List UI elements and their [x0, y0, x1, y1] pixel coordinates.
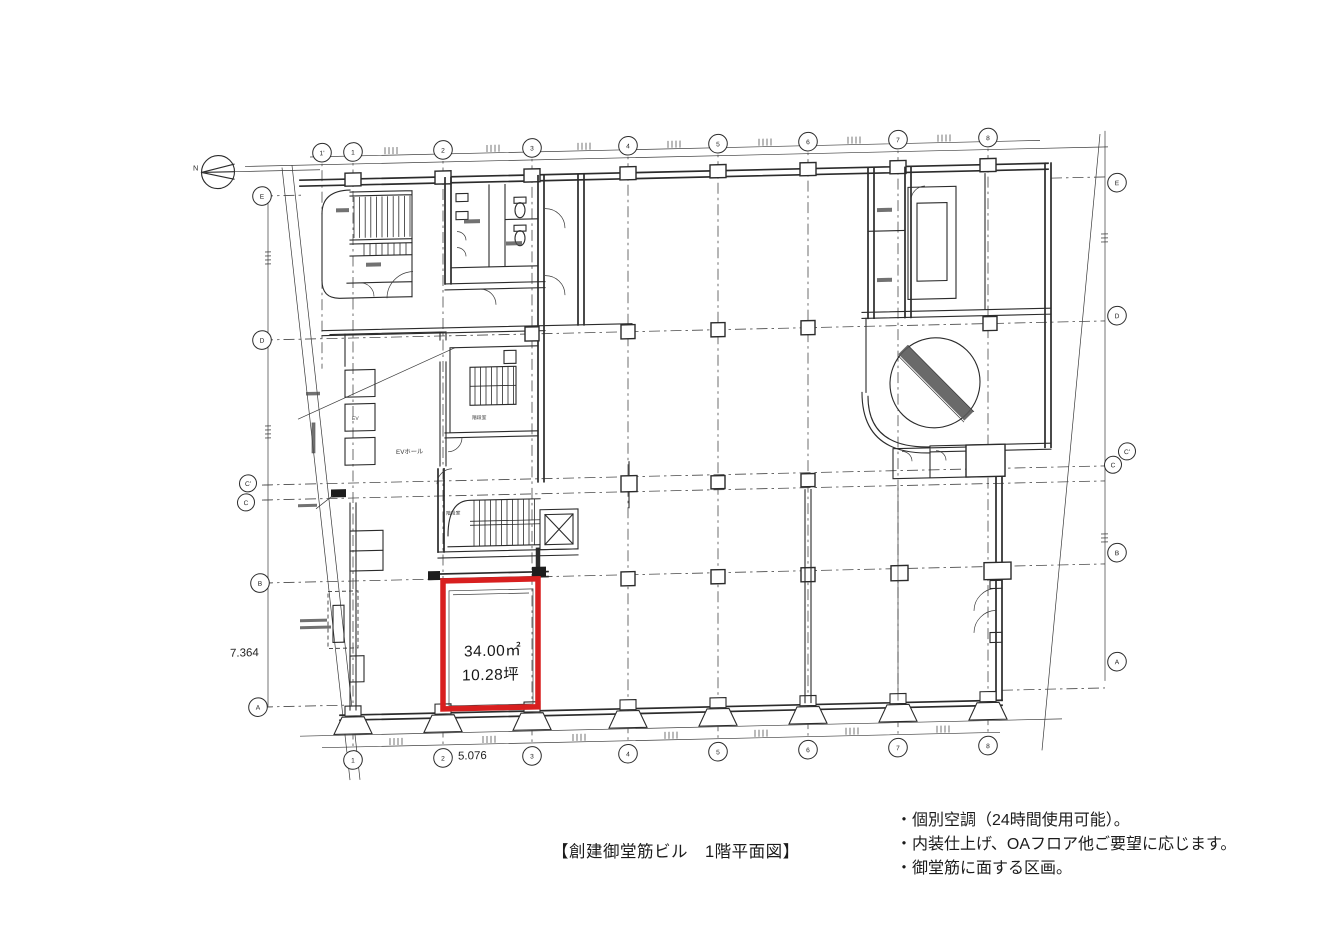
svg-text:A: A — [256, 705, 261, 712]
svg-text:7: 7 — [896, 745, 900, 752]
grid-bubble-bottom-1: 2 — [434, 748, 453, 767]
svg-text:6: 6 — [806, 747, 810, 754]
grid-bubble-left-2: C' — [240, 475, 257, 492]
svg-text:C': C' — [1124, 449, 1130, 456]
svg-text:2: 2 — [441, 755, 445, 762]
svg-text:1': 1' — [320, 150, 325, 157]
svg-text:B: B — [1115, 550, 1120, 557]
svg-text:E: E — [1115, 180, 1120, 187]
svg-text:3: 3 — [530, 753, 534, 760]
grid-bubble-bottom-5: 6 — [799, 740, 818, 759]
grid-bubble-left-1: D — [253, 331, 272, 350]
dimension-ticks — [264, 131, 1108, 748]
grid-lines — [262, 131, 1105, 752]
floor-plan-drawing: N — [0, 0, 1340, 947]
grid-bubble-bottom-2: 3 — [523, 746, 542, 765]
dimension-left: 7.364 — [230, 647, 259, 660]
machine-rooms-northeast — [862, 164, 1051, 318]
svg-text:5: 5 — [716, 141, 720, 148]
west-strip — [298, 488, 383, 711]
svg-text:C': C' — [245, 481, 251, 488]
unit-area-tsubo: 10.28坪 — [462, 665, 519, 684]
restrooms-north — [322, 174, 632, 336]
svg-text:8: 8 — [986, 135, 990, 142]
stairwell-south: 階段室 — [437, 466, 578, 579]
elevator-hall: EV EVホール — [298, 332, 455, 470]
grid-bubble-top-4: 4 — [619, 136, 638, 155]
svg-text:D: D — [260, 338, 265, 345]
svg-text:C: C — [244, 500, 249, 507]
stair-upper-label: 階段室 — [472, 414, 487, 421]
grid-bubble-left-4: B — [251, 574, 270, 593]
grid-bubble-top-8: 8 — [979, 128, 998, 147]
grid-bubble-right-4: B — [1108, 543, 1127, 562]
highlighted-unit: 34.00㎡ 10.28坪 — [428, 567, 548, 710]
columns-grid — [525, 316, 1011, 590]
grid-bubble-bottom-7: 8 — [979, 736, 998, 755]
svg-text:A: A — [1115, 659, 1120, 666]
grid-bubble-right-0: E — [1108, 173, 1127, 192]
note-item: ・内装仕上げ、OAフロア他ご要望に応じます。 — [896, 833, 1236, 857]
svg-text:2: 2 — [441, 147, 445, 154]
grid-bubble-top-7: 7 — [889, 130, 908, 149]
svg-text:7: 7 — [896, 137, 900, 144]
grid-bubble-right-5: A — [1108, 652, 1127, 671]
note-item: ・御堂筋に面する区画。 — [896, 857, 1236, 881]
unit-area-sqm: 34.00㎡ — [464, 641, 521, 660]
grid-bubble-right-3: C — [1105, 456, 1122, 473]
svg-text:4: 4 — [626, 143, 630, 150]
grid-bubble-top-5: 5 — [709, 134, 728, 153]
grid-bubble-bottom-6: 7 — [889, 738, 908, 757]
svg-text:8: 8 — [986, 743, 990, 750]
svg-text:6: 6 — [806, 139, 810, 146]
grid-bubble-left-3: C — [238, 494, 255, 511]
svg-text:C: C — [1111, 462, 1116, 469]
svg-text:5: 5 — [716, 749, 720, 756]
dimension-bottom: 5.076 — [458, 750, 487, 763]
svg-text:3: 3 — [530, 145, 534, 152]
service-rooms-east — [893, 444, 1005, 479]
grid-bubble-right-1: D — [1108, 306, 1127, 325]
svg-text:E: E — [260, 194, 265, 201]
stairwell-northwest — [322, 189, 413, 300]
drawing-caption: 【創建御堂筋ビル 1階平面図】 — [552, 838, 800, 862]
north-label: N — [193, 163, 198, 172]
svg-text:1: 1 — [351, 758, 355, 765]
grid-bubble-top-1: 1 — [344, 142, 363, 161]
elevator-label: EV — [352, 416, 359, 422]
circular-feature — [862, 314, 1051, 454]
stairwell-center: 階段室 — [445, 346, 538, 452]
grid-bubble-top-3: 3 — [523, 138, 542, 157]
grid-bubble-bottom-4: 5 — [709, 742, 728, 761]
ev-hall-label: EVホール — [396, 447, 423, 456]
svg-text:D: D — [1115, 313, 1120, 320]
note-item: ・個別空調（24時間使用可能）。 — [896, 809, 1236, 833]
svg-text:B: B — [258, 581, 263, 588]
svg-text:1: 1 — [351, 150, 355, 157]
grid-bubble-right-2: C' — [1119, 443, 1136, 460]
grid-bubble-bottom-0: 1 — [344, 750, 363, 769]
grid-bubble-top-0: 1' — [313, 143, 332, 162]
grid-bubble-left-5: A — [249, 698, 268, 717]
grid-bubble-left-0: E — [253, 187, 272, 206]
svg-text:4: 4 — [626, 751, 630, 758]
notes-list: ・個別空調（24時間使用可能）。 ・内装仕上げ、OAフロア他ご要望に応じます。 … — [896, 809, 1236, 881]
grid-bubble-bottom-3: 4 — [619, 744, 638, 763]
grid-bubble-top-6: 6 — [799, 132, 818, 151]
grid-bubble-top-2: 2 — [434, 140, 453, 159]
north-arrow-icon: N — [193, 153, 320, 189]
scanned-floor-plan-page: N — [0, 0, 1340, 947]
